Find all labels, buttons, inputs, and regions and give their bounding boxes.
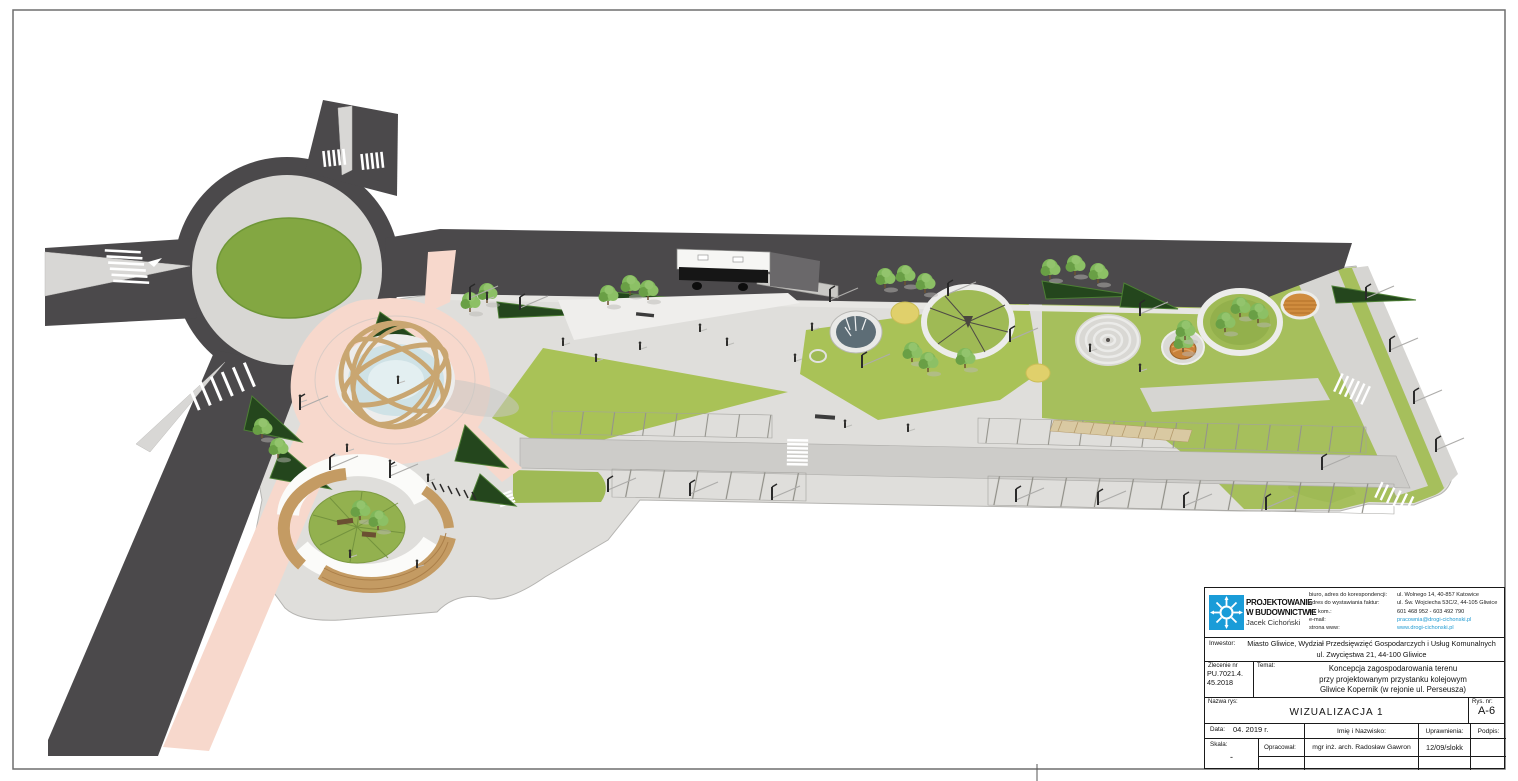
play-ring [924, 287, 1012, 357]
empty-cell [1258, 756, 1304, 770]
subject-value: Koncepcja zagospodarowania terenu przy p… [1284, 664, 1502, 696]
scale-value: - [1205, 752, 1258, 762]
drawing-name-label: Nazwa rys: [1208, 699, 1238, 705]
drawing-number-label: Rys. nr: [1469, 698, 1504, 705]
permissions-header-cell: Uprawnienia: [1418, 724, 1470, 738]
contact-email[interactable]: pracownia@drogi-cichonski.pl [1397, 616, 1471, 624]
contact-value: ul. Św. Wojciecha 53C/2, 44-105 Gliwice [1397, 599, 1497, 607]
prepared-by-label: Opracował: [1261, 743, 1296, 751]
signature-field[interactable] [1470, 738, 1506, 756]
contact-website[interactable]: www.drogi-cichonski.pl [1397, 624, 1454, 632]
drawing-sheet: { "sheet": { "background": "#ffffff", "b… [0, 0, 1518, 781]
empty-cell [1418, 756, 1470, 770]
drawing-number-value: A-6 [1469, 705, 1504, 717]
order-number-label: Zlecenie nr [1205, 662, 1253, 669]
yellow-play-circle [891, 302, 919, 324]
prepared-by-name: mgr inż. arch. Radosław Gawron [1304, 738, 1418, 756]
drawing-name-cell: Nazwa rys: WIZUALIZACJA 1 [1205, 698, 1468, 723]
parking-stalls-upper-left [552, 411, 772, 438]
contact-value: 601 468 952 - 603 492 790 [1397, 608, 1464, 616]
empty-cell [1304, 756, 1418, 770]
contact-label: biuro, adres do korespondencji: [1309, 591, 1397, 599]
prepared-by-permissions: 12/09/slokk [1418, 738, 1470, 756]
investor-label: Inwestor: [1209, 640, 1235, 647]
drawing-name-value: WIZUALIZACJA 1 [1205, 707, 1468, 718]
subject-label: Temat: [1257, 663, 1275, 669]
signature-header-cell: Podpis: [1470, 724, 1506, 738]
prepared-by-cell: Opracował: [1258, 738, 1304, 756]
date-value: 04. 2019 r. [1233, 725, 1268, 734]
small-lawn-circle [810, 350, 826, 362]
contact-value: ul. Wolnego 14, 40-857 Katowice [1397, 591, 1479, 599]
order-subject-row: Zlecenie nr PU.7021.4. 45.2018 Temat: Ko… [1205, 661, 1504, 697]
yellow-play-circle [1026, 364, 1050, 382]
contact-label: adres do wystawiania faktur: [1309, 599, 1397, 607]
concentric-mound [1075, 314, 1141, 366]
roundabout-island [217, 218, 361, 318]
empty-cell [1470, 756, 1506, 770]
company-logo-icon [1209, 595, 1244, 630]
name-header-cell: Imię i Nazwisko: [1304, 724, 1418, 738]
date-cell: Data: 04. 2019 r. [1205, 724, 1304, 738]
drawing-number-cell: Rys. nr: A-6 [1468, 698, 1504, 723]
title-block-header: PROJEKTOWANIE W BUDOWNICTWIE Jacek Cicho… [1205, 588, 1504, 637]
date-label: Data: [1207, 725, 1225, 733]
scale-label: Skala: [1207, 740, 1228, 748]
contact-label: e-mail: [1309, 616, 1397, 624]
investor-value: Miasto Gliwice, Wydział Przedsięwzięć Go… [1241, 639, 1502, 660]
investor-row: Inwestor: Miasto Gliwice, Wydział Przeds… [1205, 637, 1504, 661]
contact-label: strona www: [1309, 624, 1397, 632]
order-number-cell: Zlecenie nr PU.7021.4. 45.2018 [1205, 662, 1253, 697]
drawing-name-row: Nazwa rys: WIZUALIZACJA 1 Rys. nr: A-6 [1205, 697, 1504, 723]
subject-cell: Temat: Koncepcja zagospodarowania terenu… [1253, 662, 1504, 697]
signature-rows: Data: 04. 2019 r. Imię i Nazwisko: Upraw… [1205, 723, 1504, 769]
orange-deck-circle [1282, 292, 1318, 318]
contact-label: tel. kom.: [1309, 608, 1397, 616]
title-block: PROJEKTOWANIE W BUDOWNICTWIE Jacek Cicho… [1204, 587, 1505, 769]
company-contact: biuro, adres do korespondencji:ul. Wolne… [1305, 588, 1504, 637]
scale-cell: Skala: - [1205, 738, 1258, 770]
company-logo: PROJEKTOWANIE W BUDOWNICTWIE Jacek Cicho… [1205, 588, 1305, 637]
